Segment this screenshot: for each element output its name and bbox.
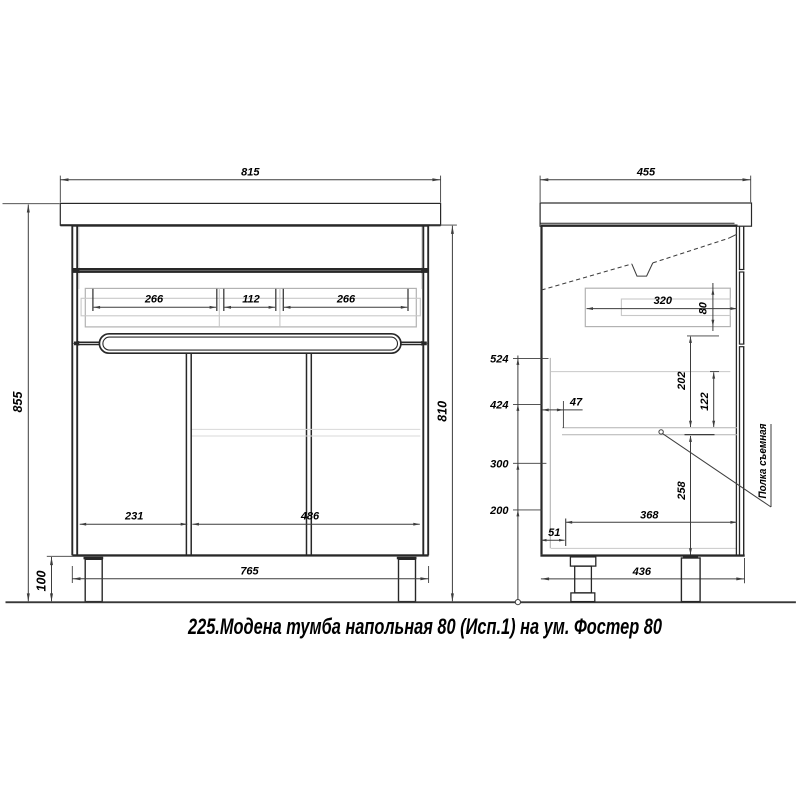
svg-text:266: 266 — [144, 294, 164, 306]
svg-text:436: 436 — [632, 566, 652, 578]
svg-text:368: 368 — [640, 509, 659, 521]
svg-text:524: 524 — [490, 353, 508, 365]
svg-text:202: 202 — [676, 372, 688, 391]
svg-text:486: 486 — [300, 511, 320, 523]
svg-text:200: 200 — [489, 505, 509, 517]
svg-text:47: 47 — [569, 397, 583, 409]
svg-text:51: 51 — [548, 527, 560, 539]
svg-text:765: 765 — [240, 565, 259, 577]
svg-text:320: 320 — [654, 295, 673, 307]
svg-text:112: 112 — [242, 294, 260, 306]
svg-text:266: 266 — [336, 294, 356, 306]
svg-text:258: 258 — [676, 480, 688, 500]
svg-text:122: 122 — [699, 392, 711, 410]
svg-text:855: 855 — [11, 391, 25, 413]
svg-text:80: 80 — [697, 301, 709, 314]
svg-text:100: 100 — [35, 571, 49, 592]
svg-text:424: 424 — [489, 399, 508, 411]
svg-text:810: 810 — [436, 401, 450, 422]
svg-text:Полка съемная: Полка съемная — [757, 423, 769, 498]
svg-text:225.Модена тумба напольная 80: 225.Модена тумба напольная 80 (Исп.1) на… — [187, 614, 662, 639]
svg-text:231: 231 — [124, 511, 143, 523]
svg-text:300: 300 — [490, 458, 509, 470]
svg-text:815: 815 — [241, 166, 260, 178]
svg-text:455: 455 — [636, 166, 656, 178]
